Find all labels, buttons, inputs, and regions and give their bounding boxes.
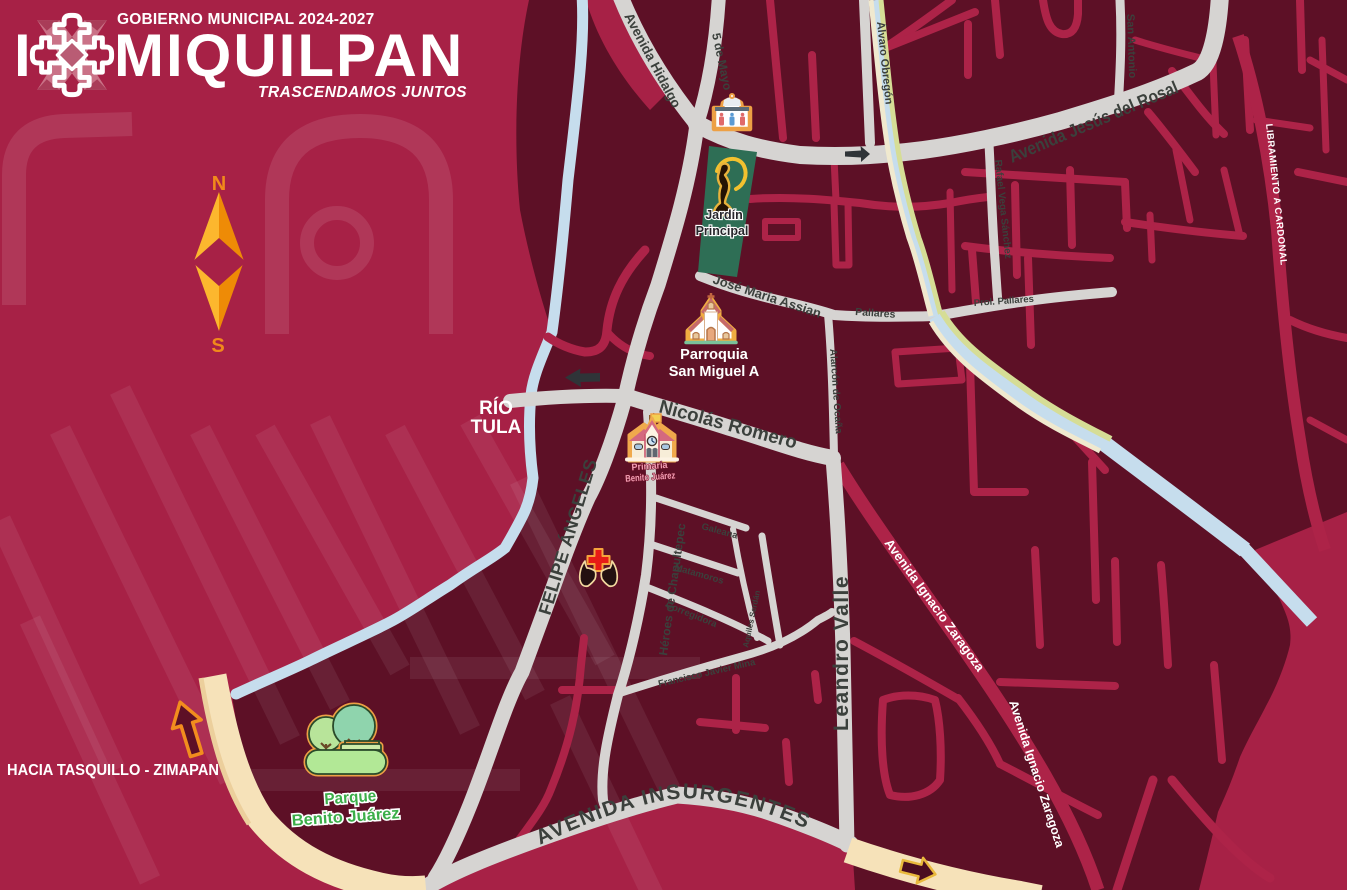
svg-text:Parroquia: Parroquia bbox=[680, 347, 749, 363]
svg-text:MIQUILPAN: MIQUILPAN bbox=[114, 22, 464, 89]
svg-text:N: N bbox=[212, 173, 226, 195]
svg-text:RÍO: RÍO bbox=[479, 397, 513, 419]
svg-text:HACIA TASQUILLO - ZIMAPAN: HACIA TASQUILLO - ZIMAPAN bbox=[7, 762, 219, 779]
svg-text:Leandro Valle: Leandro Valle bbox=[830, 575, 853, 731]
svg-text:Parque: Parque bbox=[324, 788, 377, 809]
svg-text:S: S bbox=[211, 335, 224, 357]
svg-text:Principal: Principal bbox=[696, 224, 749, 238]
svg-text:San Antonio: San Antonio bbox=[1124, 14, 1138, 79]
svg-text:I: I bbox=[14, 22, 31, 89]
svg-text:Jardín: Jardín bbox=[705, 208, 743, 222]
svg-text:San Miguel A: San Miguel A bbox=[669, 364, 760, 380]
svg-text:TULA: TULA bbox=[471, 417, 522, 438]
svg-text:TRASCENDAMOS JUNTOS: TRASCENDAMOS JUNTOS bbox=[258, 84, 467, 101]
